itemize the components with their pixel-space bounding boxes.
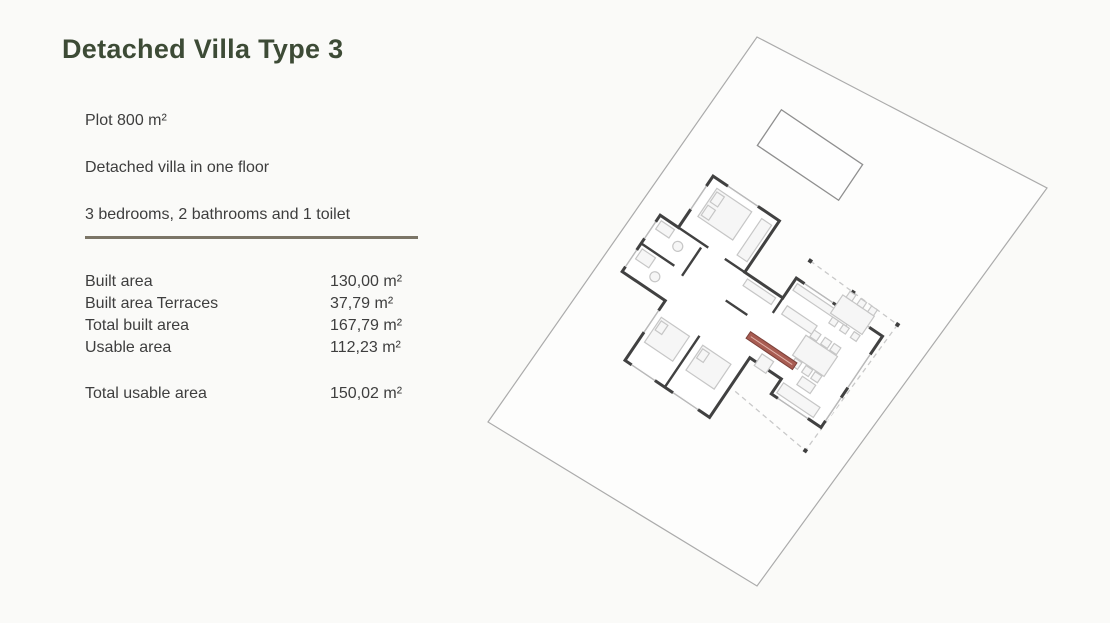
- site-plan: [0, 0, 1110, 623]
- slide: Detached Villa Type 3 Plot 800 m² Detach…: [0, 0, 1110, 623]
